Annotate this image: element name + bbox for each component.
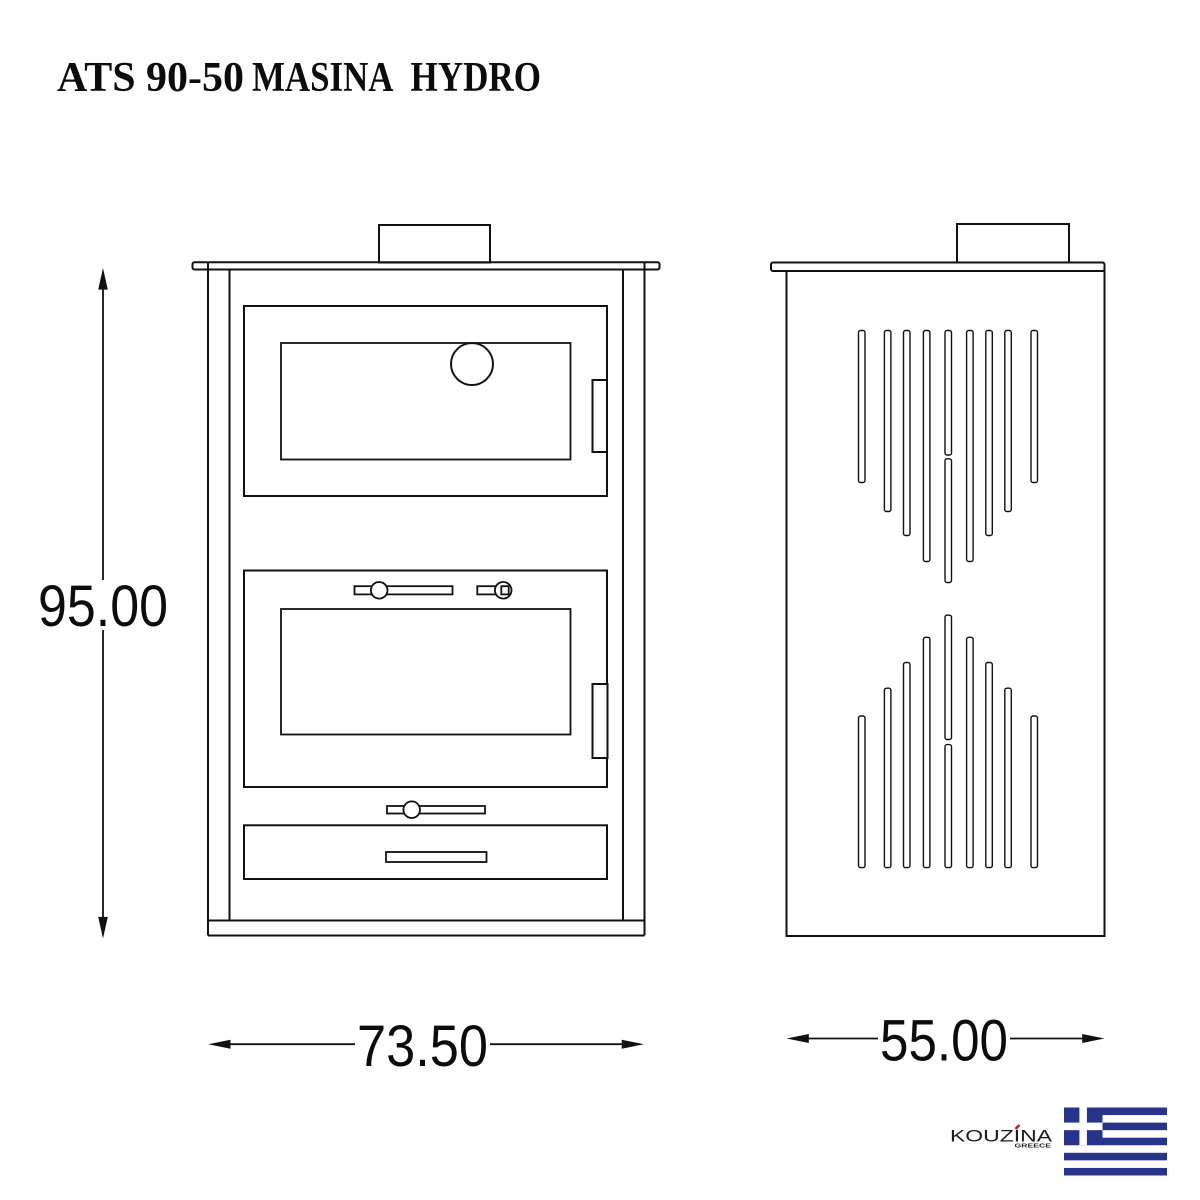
svg-text:MASINA: MASINA: [252, 55, 394, 101]
svg-text:GREECE: GREECE: [1015, 1144, 1052, 1150]
svg-text:55.00: 55.00: [880, 1009, 1008, 1074]
svg-text:ATS 90-50: ATS 90-50: [57, 55, 244, 101]
svg-text:95.00: 95.00: [38, 574, 168, 639]
svg-text:HYDRO: HYDRO: [411, 55, 542, 101]
svg-text:73.50: 73.50: [357, 1014, 488, 1079]
